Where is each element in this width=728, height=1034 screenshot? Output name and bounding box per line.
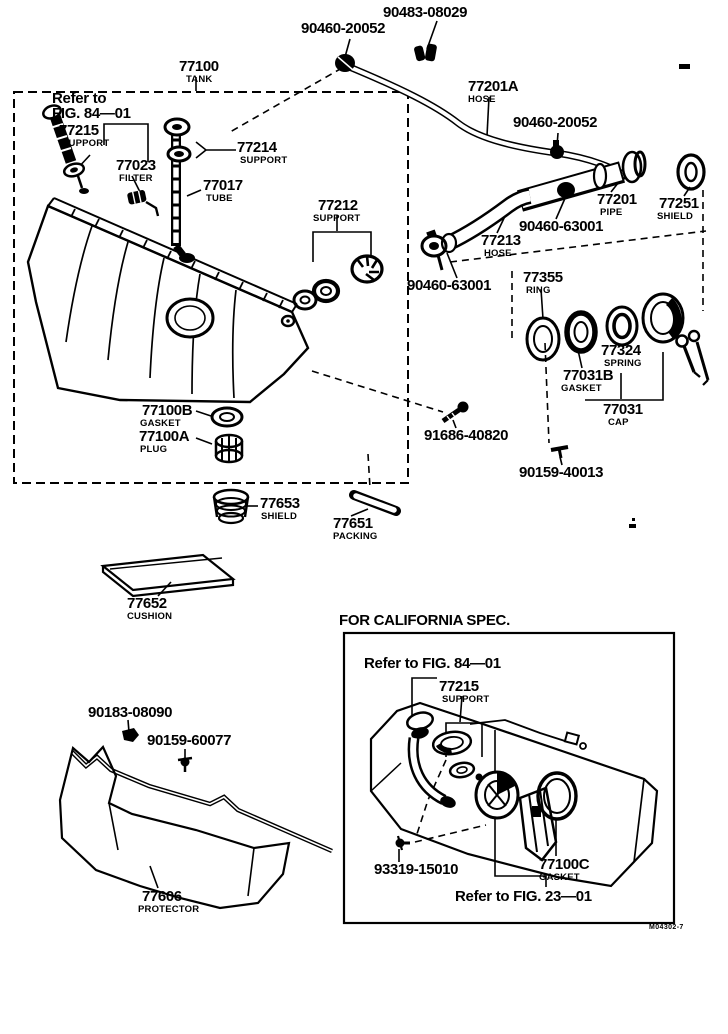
protector-77606 <box>60 747 332 908</box>
label-77653-shield: 77653SHIELD <box>260 497 300 522</box>
label-77100A-plug: 77100APLUG <box>139 430 189 455</box>
label-93319-15010: 93319-15010 <box>374 863 458 877</box>
part-number: 77031 <box>603 403 643 417</box>
part-number: 77031B <box>563 369 613 383</box>
part-number: 77355 <box>523 271 563 285</box>
part-number: 77215 <box>59 124 109 138</box>
parts-diagram-page: 90483-08029 90460-20052 77100TANK 77215S… <box>0 0 728 1034</box>
label-77201A-hose: 77201AHOSE <box>468 80 518 105</box>
part-name: CAP <box>608 418 643 428</box>
label-77251-shield: 77251SHIELD <box>657 197 699 222</box>
clamp-90460-63001-b <box>422 229 446 270</box>
label-77100B-gasket: 77100BGASKET <box>140 404 192 429</box>
part-number: 77100C <box>539 858 589 872</box>
gasket-77031B <box>567 313 595 351</box>
plug-77100A <box>216 435 242 462</box>
part-name: SUPPORT <box>442 695 489 705</box>
california-spec-title: FOR CALIFORNIA SPEC. <box>339 613 510 628</box>
part-number: 77214 <box>237 141 287 155</box>
part-number: 77201 <box>597 193 637 207</box>
breather-tube-77017 <box>165 119 195 263</box>
filter-stem <box>146 202 158 216</box>
part-name: SHIELD <box>657 212 699 222</box>
label-90183-08090: 90183-08090 <box>88 706 172 720</box>
label-77100-tank: 77100TANK <box>179 60 219 85</box>
label-77324-spring: 77324SPRING <box>601 344 642 369</box>
label-77031B-gasket: 77031BGASKET <box>561 369 613 394</box>
label-77652-cushion: 77652CUSHION <box>127 597 172 622</box>
clamp-90460-63001-a <box>557 182 575 198</box>
part-number: 90183-08090 <box>88 706 172 720</box>
filter-77023 <box>127 189 147 204</box>
part-number: 90460-63001 <box>407 279 491 293</box>
label-90159-40013: 90159-40013 <box>519 466 603 480</box>
part-name: CUSHION <box>127 612 172 622</box>
label-77214-support: 77214SUPPORT <box>237 141 287 166</box>
part-name: RING <box>526 286 563 296</box>
label-77355-ring: 77355RING <box>523 271 563 296</box>
label-77017-tube: 77017TUBE <box>203 179 243 204</box>
part-number: 90460-63001 <box>519 220 603 234</box>
shield-ring-77251 <box>678 155 704 189</box>
part-number: 90159-60077 <box>147 734 231 748</box>
gasket-77100B <box>212 408 242 426</box>
ca-wire-connector <box>470 720 586 749</box>
label-90483-08029: 90483-08029 <box>383 6 467 20</box>
part-number: 90483-08029 <box>383 6 467 20</box>
part-number: 90460-20052 <box>301 22 385 36</box>
ca-small-gasket <box>449 761 475 779</box>
part-name: PACKING <box>333 532 378 542</box>
packing-77651 <box>354 495 396 511</box>
label-ca-77215-support: 77215SUPPORT <box>439 680 489 705</box>
support-grommets-77212 <box>294 256 382 309</box>
part-name: GASKET <box>539 873 589 883</box>
fuel-tank-77100 <box>28 198 308 402</box>
part-number: 77215 <box>439 680 489 694</box>
part-number: 77324 <box>601 344 642 358</box>
label-77213-hose: 77213HOSE <box>481 234 521 259</box>
label-90460-63001-b: 90460-63001 <box>407 279 491 293</box>
label-77023-filter: 77023FILTER <box>116 159 156 184</box>
clamp-90483-08029 <box>413 43 437 61</box>
part-number: 77213 <box>481 234 521 248</box>
part-number: 77212 <box>318 199 360 213</box>
part-number: 90460-20052 <box>513 116 597 130</box>
part-number: 77023 <box>116 159 156 173</box>
label-77606-protector: 77606PROTECTOR <box>138 890 199 915</box>
part-number: 77100 <box>179 60 219 74</box>
part-name: TUBE <box>206 194 243 204</box>
label-77212-support: 77212SUPPORT <box>313 199 360 224</box>
bolt-90159-40013 <box>551 447 568 458</box>
part-number: 91686-40820 <box>424 429 508 443</box>
note-refer-fig-84-01: Refer to FIG. 84—01 <box>52 91 131 121</box>
part-name: SUPPORT <box>313 214 360 224</box>
figure-code: M04302-7 <box>649 924 684 931</box>
label-77031-cap: 77031CAP <box>603 403 643 428</box>
ca-bolt-93319-15010 <box>396 836 411 850</box>
part-name: SUPPORT <box>62 139 109 149</box>
dashed-reference-lines <box>230 68 706 842</box>
part-number: 77653 <box>260 497 300 511</box>
ca-support-ring-77215 <box>432 729 473 756</box>
spring-77324 <box>607 307 637 345</box>
label-77201-pipe: 77201PIPE <box>597 193 637 218</box>
note-line: FIG. 84—01 <box>52 106 131 121</box>
label-77100C-gasket: 77100CGASKET <box>539 858 589 883</box>
note-line: Refer to <box>52 91 131 106</box>
bolt-90159-60077 <box>178 758 192 773</box>
cap-keys <box>677 331 709 385</box>
label-91686-40820: 91686-40820 <box>424 429 508 443</box>
label-90460-63001-a: 90460-63001 <box>519 220 603 234</box>
part-number: 77606 <box>142 890 199 904</box>
part-number: 77100B <box>142 404 192 418</box>
part-number: 90159-40013 <box>519 466 603 480</box>
cushion-77652 <box>103 555 233 596</box>
label-77215-support: 77215SUPPORT <box>59 124 109 149</box>
nut-90183-08090 <box>122 728 139 742</box>
clamp-90460-20052-mid <box>550 140 564 159</box>
part-number: 93319-15010 <box>374 863 458 877</box>
part-name: PIPE <box>600 208 637 218</box>
part-name: PLUG <box>140 445 189 455</box>
label-90159-60077: 90159-60077 <box>147 734 231 748</box>
part-name: SUPPORT <box>240 156 287 166</box>
part-name: HOSE <box>484 249 521 259</box>
part-name: PROTECTOR <box>138 905 199 915</box>
ring-77355 <box>527 318 559 360</box>
part-number: 77251 <box>659 197 699 211</box>
part-number: 77201A <box>468 80 518 94</box>
shield-77653 <box>214 490 248 523</box>
part-name: TANK <box>186 75 219 85</box>
ca-fuel-pump <box>476 772 519 818</box>
ca-gasket-77100C <box>538 773 576 819</box>
label-90460-20052-mid: 90460-20052 <box>513 116 597 130</box>
part-number: 77652 <box>127 597 172 611</box>
part-name: HOSE <box>468 95 518 105</box>
part-name: FILTER <box>119 174 156 184</box>
part-name: SHIELD <box>261 512 300 522</box>
ca-filler-neck <box>405 710 457 810</box>
clamp-90460-20052-top <box>335 54 355 72</box>
cap-77031 <box>643 294 683 342</box>
part-name: GASKET <box>561 384 613 394</box>
label-90460-20052-top: 90460-20052 <box>301 22 385 36</box>
screw-91686-40820 <box>443 402 469 422</box>
part-number: 77100A <box>139 430 189 444</box>
note-ca-refer-fig-84-01: Refer to FIG. 84—01 <box>364 656 501 671</box>
note-ca-refer-fig-23-01: Refer to FIG. 23—01 <box>455 889 592 904</box>
part-number: 77017 <box>203 179 243 193</box>
label-77651-packing: 77651PACKING <box>333 517 378 542</box>
part-number: 77651 <box>333 517 378 531</box>
